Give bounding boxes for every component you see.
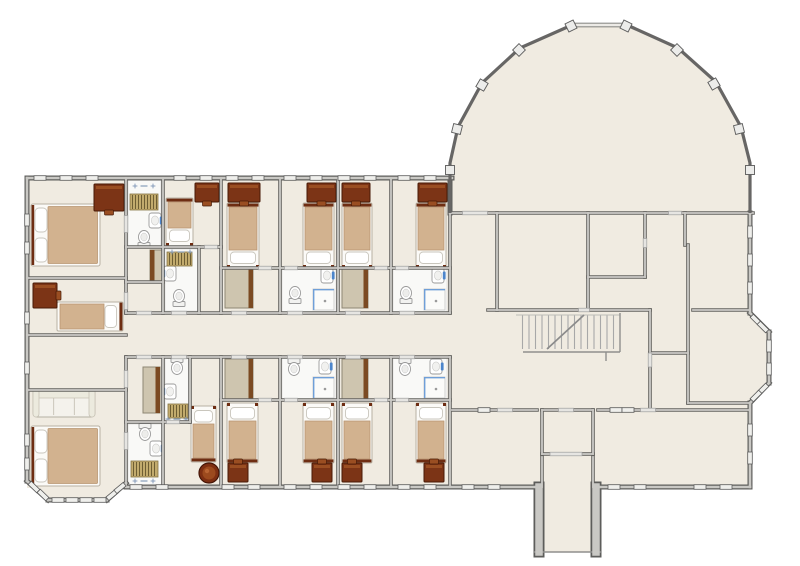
window xyxy=(25,458,30,470)
wardrobe-door-edge xyxy=(150,250,155,281)
round-table-top xyxy=(203,467,216,480)
single-bed-pillow xyxy=(307,252,331,264)
dresser-knob xyxy=(240,201,249,206)
dresser-knob xyxy=(234,459,243,464)
wardrobe-door-edge xyxy=(156,367,161,413)
window xyxy=(338,485,350,490)
window xyxy=(462,485,474,490)
door xyxy=(232,311,247,315)
door xyxy=(137,311,152,315)
door xyxy=(288,311,303,315)
shower-drain xyxy=(435,300,438,303)
window xyxy=(200,176,212,181)
double-bed xyxy=(31,426,100,486)
window xyxy=(634,485,646,490)
shower-mat xyxy=(168,404,188,418)
window xyxy=(488,485,500,490)
single-bed-pillow xyxy=(420,408,443,420)
shower-tray xyxy=(424,377,445,398)
sink-bowl xyxy=(166,387,173,396)
shower-tray xyxy=(313,289,334,310)
window xyxy=(424,485,436,490)
double-bed-blanket xyxy=(48,207,98,264)
window xyxy=(284,485,296,490)
dresser-top xyxy=(309,185,334,188)
toilet xyxy=(173,290,185,307)
dresser-knob xyxy=(317,201,326,206)
dresser-knob xyxy=(352,201,361,206)
single-bed-blanket xyxy=(305,421,332,459)
wardrobe-door-edge xyxy=(249,359,254,399)
window xyxy=(25,214,30,226)
door xyxy=(124,433,128,450)
single-bed xyxy=(191,406,216,462)
window xyxy=(25,242,30,254)
round-table xyxy=(199,463,219,483)
dresser-top xyxy=(35,285,55,288)
wardrobe xyxy=(150,250,163,281)
single-bed-headboard xyxy=(343,459,372,462)
floor-plan-canvas xyxy=(0,0,800,566)
double-bed xyxy=(31,204,100,266)
toilet xyxy=(399,359,411,376)
single-bed-pillow xyxy=(231,408,255,420)
door xyxy=(259,398,272,402)
sofa-armrest xyxy=(33,389,39,417)
door xyxy=(396,266,409,270)
single-bed-blanket xyxy=(344,421,370,459)
single-bed-blanket xyxy=(344,207,370,250)
door xyxy=(259,266,272,270)
toilet xyxy=(289,287,301,304)
dresser-knob xyxy=(430,459,439,464)
door xyxy=(579,308,590,312)
shower-mat-base xyxy=(167,252,192,266)
door xyxy=(285,266,298,270)
single-bed-pillow xyxy=(231,252,256,264)
double-bed-headboard xyxy=(32,205,35,265)
sofa-back xyxy=(35,391,93,398)
door xyxy=(498,408,513,412)
single-bed-headboard xyxy=(192,458,216,461)
dresser xyxy=(94,184,124,215)
wardrobe-door-edge xyxy=(249,268,254,308)
sink-bowl xyxy=(434,271,441,280)
door xyxy=(346,355,361,359)
window xyxy=(25,362,30,374)
shower xyxy=(313,377,334,398)
single-bed-post xyxy=(303,403,306,406)
window xyxy=(310,485,322,490)
single-bed-post xyxy=(213,406,216,409)
door xyxy=(463,211,488,215)
shower xyxy=(313,289,334,310)
single-bed-post xyxy=(255,403,258,406)
sink-bowl xyxy=(166,269,173,278)
door xyxy=(124,216,128,233)
dresser-top xyxy=(344,465,360,468)
window xyxy=(174,176,186,181)
shower-drain xyxy=(435,388,438,391)
window xyxy=(364,485,376,490)
sink-bowl xyxy=(432,362,439,371)
door xyxy=(124,371,128,388)
door xyxy=(550,452,582,456)
door xyxy=(285,398,298,402)
sink-faucet xyxy=(330,363,333,371)
single-bed xyxy=(416,203,446,268)
sink-bowl xyxy=(151,216,158,225)
single-bed-post xyxy=(416,403,419,406)
rotunda-window xyxy=(452,124,463,135)
toilet-seat xyxy=(402,365,408,373)
single-bed-pillow xyxy=(105,306,117,328)
sink-faucet xyxy=(332,272,335,280)
shower-mat xyxy=(131,461,158,477)
window xyxy=(156,485,168,490)
single-bed xyxy=(166,198,193,246)
shower xyxy=(424,289,445,310)
window xyxy=(478,408,490,413)
single-bed xyxy=(342,403,372,463)
shower xyxy=(424,377,445,398)
window xyxy=(748,452,753,464)
single-bed-post xyxy=(331,403,334,406)
window xyxy=(60,176,72,181)
dresser-top xyxy=(197,185,217,188)
shower-mat xyxy=(167,252,192,266)
single-bed-blanket xyxy=(60,304,104,329)
dresser xyxy=(33,283,61,308)
window xyxy=(34,176,46,181)
door xyxy=(232,355,247,359)
single-bed-blanket xyxy=(229,207,257,250)
door xyxy=(346,311,361,315)
sink xyxy=(321,268,335,283)
sink-faucet xyxy=(443,272,446,280)
window xyxy=(748,282,753,294)
single-bed-pillow xyxy=(420,252,443,264)
door xyxy=(205,245,218,249)
single-bed-blanket xyxy=(193,424,214,458)
door xyxy=(167,420,180,424)
toilet-seat xyxy=(142,430,148,438)
door xyxy=(124,293,128,310)
dresser-top xyxy=(230,185,258,188)
dresser-top xyxy=(344,185,368,188)
window xyxy=(748,226,753,238)
single-bed xyxy=(227,203,259,268)
shower-mat xyxy=(130,194,158,210)
shower-drain xyxy=(324,388,327,391)
wardrobe xyxy=(225,359,253,399)
door xyxy=(559,408,574,412)
window xyxy=(130,485,142,490)
window xyxy=(338,176,350,181)
window xyxy=(284,176,296,181)
door xyxy=(375,266,388,270)
shower-tray xyxy=(313,377,334,398)
dresser-knob xyxy=(428,201,437,206)
single-bed-blanket xyxy=(418,207,444,250)
toilet-seat xyxy=(291,365,297,373)
single-bed-post xyxy=(443,403,446,406)
door xyxy=(400,355,415,359)
window xyxy=(398,176,410,181)
window xyxy=(608,485,620,490)
door xyxy=(643,239,647,248)
single-bed xyxy=(303,403,334,463)
floor-plan xyxy=(0,0,800,566)
wardrobe xyxy=(342,268,368,308)
double-bed-pillow xyxy=(35,430,47,453)
window xyxy=(252,176,264,181)
single-bed-pillow xyxy=(307,408,331,420)
dresser-top xyxy=(96,186,122,189)
double-bed-blanket xyxy=(48,429,98,484)
window xyxy=(720,485,732,490)
dresser-top xyxy=(230,465,246,468)
round-table-highlight xyxy=(205,469,209,473)
double-bed-headboard xyxy=(32,427,35,485)
window xyxy=(767,363,772,375)
door xyxy=(641,408,656,412)
wardrobe xyxy=(143,367,160,413)
dresser-knob xyxy=(105,210,114,215)
wardrobe xyxy=(342,359,368,399)
rotunda-window xyxy=(734,124,745,135)
toilet-seat xyxy=(403,289,409,297)
wardrobe-door-edge xyxy=(364,359,369,399)
dresser-knob xyxy=(318,459,327,464)
toilet xyxy=(400,287,412,304)
door xyxy=(137,355,152,359)
sink xyxy=(149,213,163,228)
window xyxy=(86,176,98,181)
wardrobe-door-edge xyxy=(364,268,369,308)
toilet xyxy=(138,231,150,248)
rotunda-window xyxy=(746,166,755,175)
single-bed-blanket xyxy=(229,421,256,459)
wardrobe xyxy=(225,268,253,308)
shower-tray xyxy=(424,289,445,310)
single-bed-headboard xyxy=(119,303,122,331)
sink-faucet xyxy=(441,363,444,371)
window xyxy=(610,408,622,413)
single-bed xyxy=(303,203,334,268)
window xyxy=(424,176,436,181)
shower-drain xyxy=(324,300,327,303)
single-bed-blanket xyxy=(418,421,444,459)
rotunda-window xyxy=(446,166,455,175)
single-bed-post xyxy=(342,403,345,406)
sink xyxy=(432,268,446,283)
single-bed-headboard xyxy=(167,199,193,202)
window xyxy=(310,176,322,181)
toilet-seat xyxy=(174,364,180,372)
single-bed-post xyxy=(227,403,230,406)
dresser-top xyxy=(314,465,330,468)
sink xyxy=(319,359,333,374)
single-bed-pillow xyxy=(170,230,190,242)
window xyxy=(80,498,92,503)
toilet xyxy=(288,359,300,376)
toilet xyxy=(171,358,183,375)
sofa-armrest xyxy=(89,389,95,417)
single-bed-pillow xyxy=(346,252,369,264)
window xyxy=(248,485,260,490)
window xyxy=(25,312,30,324)
dresser-knob xyxy=(56,291,61,300)
sink-bowl xyxy=(323,271,330,280)
sink-bowl xyxy=(152,444,159,453)
window xyxy=(25,434,30,446)
door xyxy=(172,311,187,315)
window xyxy=(748,424,753,436)
window xyxy=(748,254,753,266)
window xyxy=(622,408,634,413)
double-bed-pillow xyxy=(35,238,47,262)
single-bed xyxy=(416,403,446,463)
window xyxy=(694,485,706,490)
shower-mat-base xyxy=(131,461,158,477)
dresser-knob xyxy=(348,459,357,464)
window xyxy=(364,176,376,181)
door xyxy=(288,355,303,359)
toilet xyxy=(139,424,151,441)
window xyxy=(222,485,234,490)
toilet-seat xyxy=(292,289,298,297)
single-bed-pillow xyxy=(346,408,369,420)
single-bed xyxy=(342,203,372,268)
window xyxy=(398,485,410,490)
double-bed-pillow xyxy=(35,208,47,232)
double-bed-pillow xyxy=(35,459,47,482)
single-bed xyxy=(227,403,258,463)
door xyxy=(396,398,409,402)
window xyxy=(66,498,78,503)
single-bed-horizontal xyxy=(57,302,123,331)
door xyxy=(669,211,682,215)
window xyxy=(226,176,238,181)
single-bed-post xyxy=(369,403,372,406)
dresser-top xyxy=(420,185,445,188)
door xyxy=(648,353,652,367)
window xyxy=(52,498,64,503)
single-bed-blanket xyxy=(168,202,191,228)
single-bed-blanket xyxy=(305,207,332,250)
window xyxy=(767,340,772,352)
sink-bowl xyxy=(321,362,328,371)
toilet-seat xyxy=(176,292,182,300)
door xyxy=(375,398,388,402)
single-bed-pillow xyxy=(195,411,213,423)
door xyxy=(172,355,187,359)
door xyxy=(400,311,415,315)
dresser-top xyxy=(426,465,442,468)
toilet-seat xyxy=(141,233,147,241)
sofa xyxy=(33,389,95,417)
sink xyxy=(430,359,444,374)
dresser-knob xyxy=(203,201,212,206)
window xyxy=(94,498,106,503)
